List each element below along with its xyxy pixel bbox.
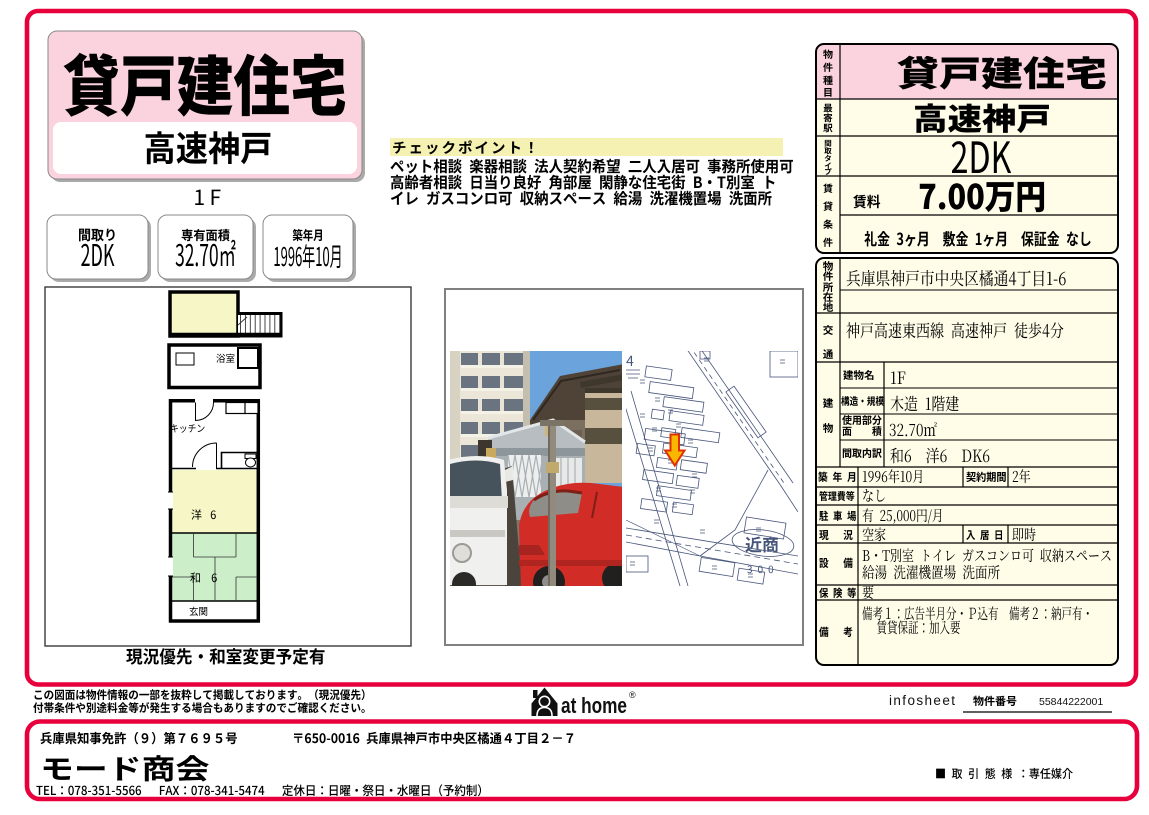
svg-text:55844222001: 55844222001 [1039, 696, 1103, 708]
svg-text:at home: at home [561, 693, 627, 718]
svg-text:infosheet: infosheet [889, 693, 956, 708]
svg-text:®: ® [629, 690, 636, 700]
